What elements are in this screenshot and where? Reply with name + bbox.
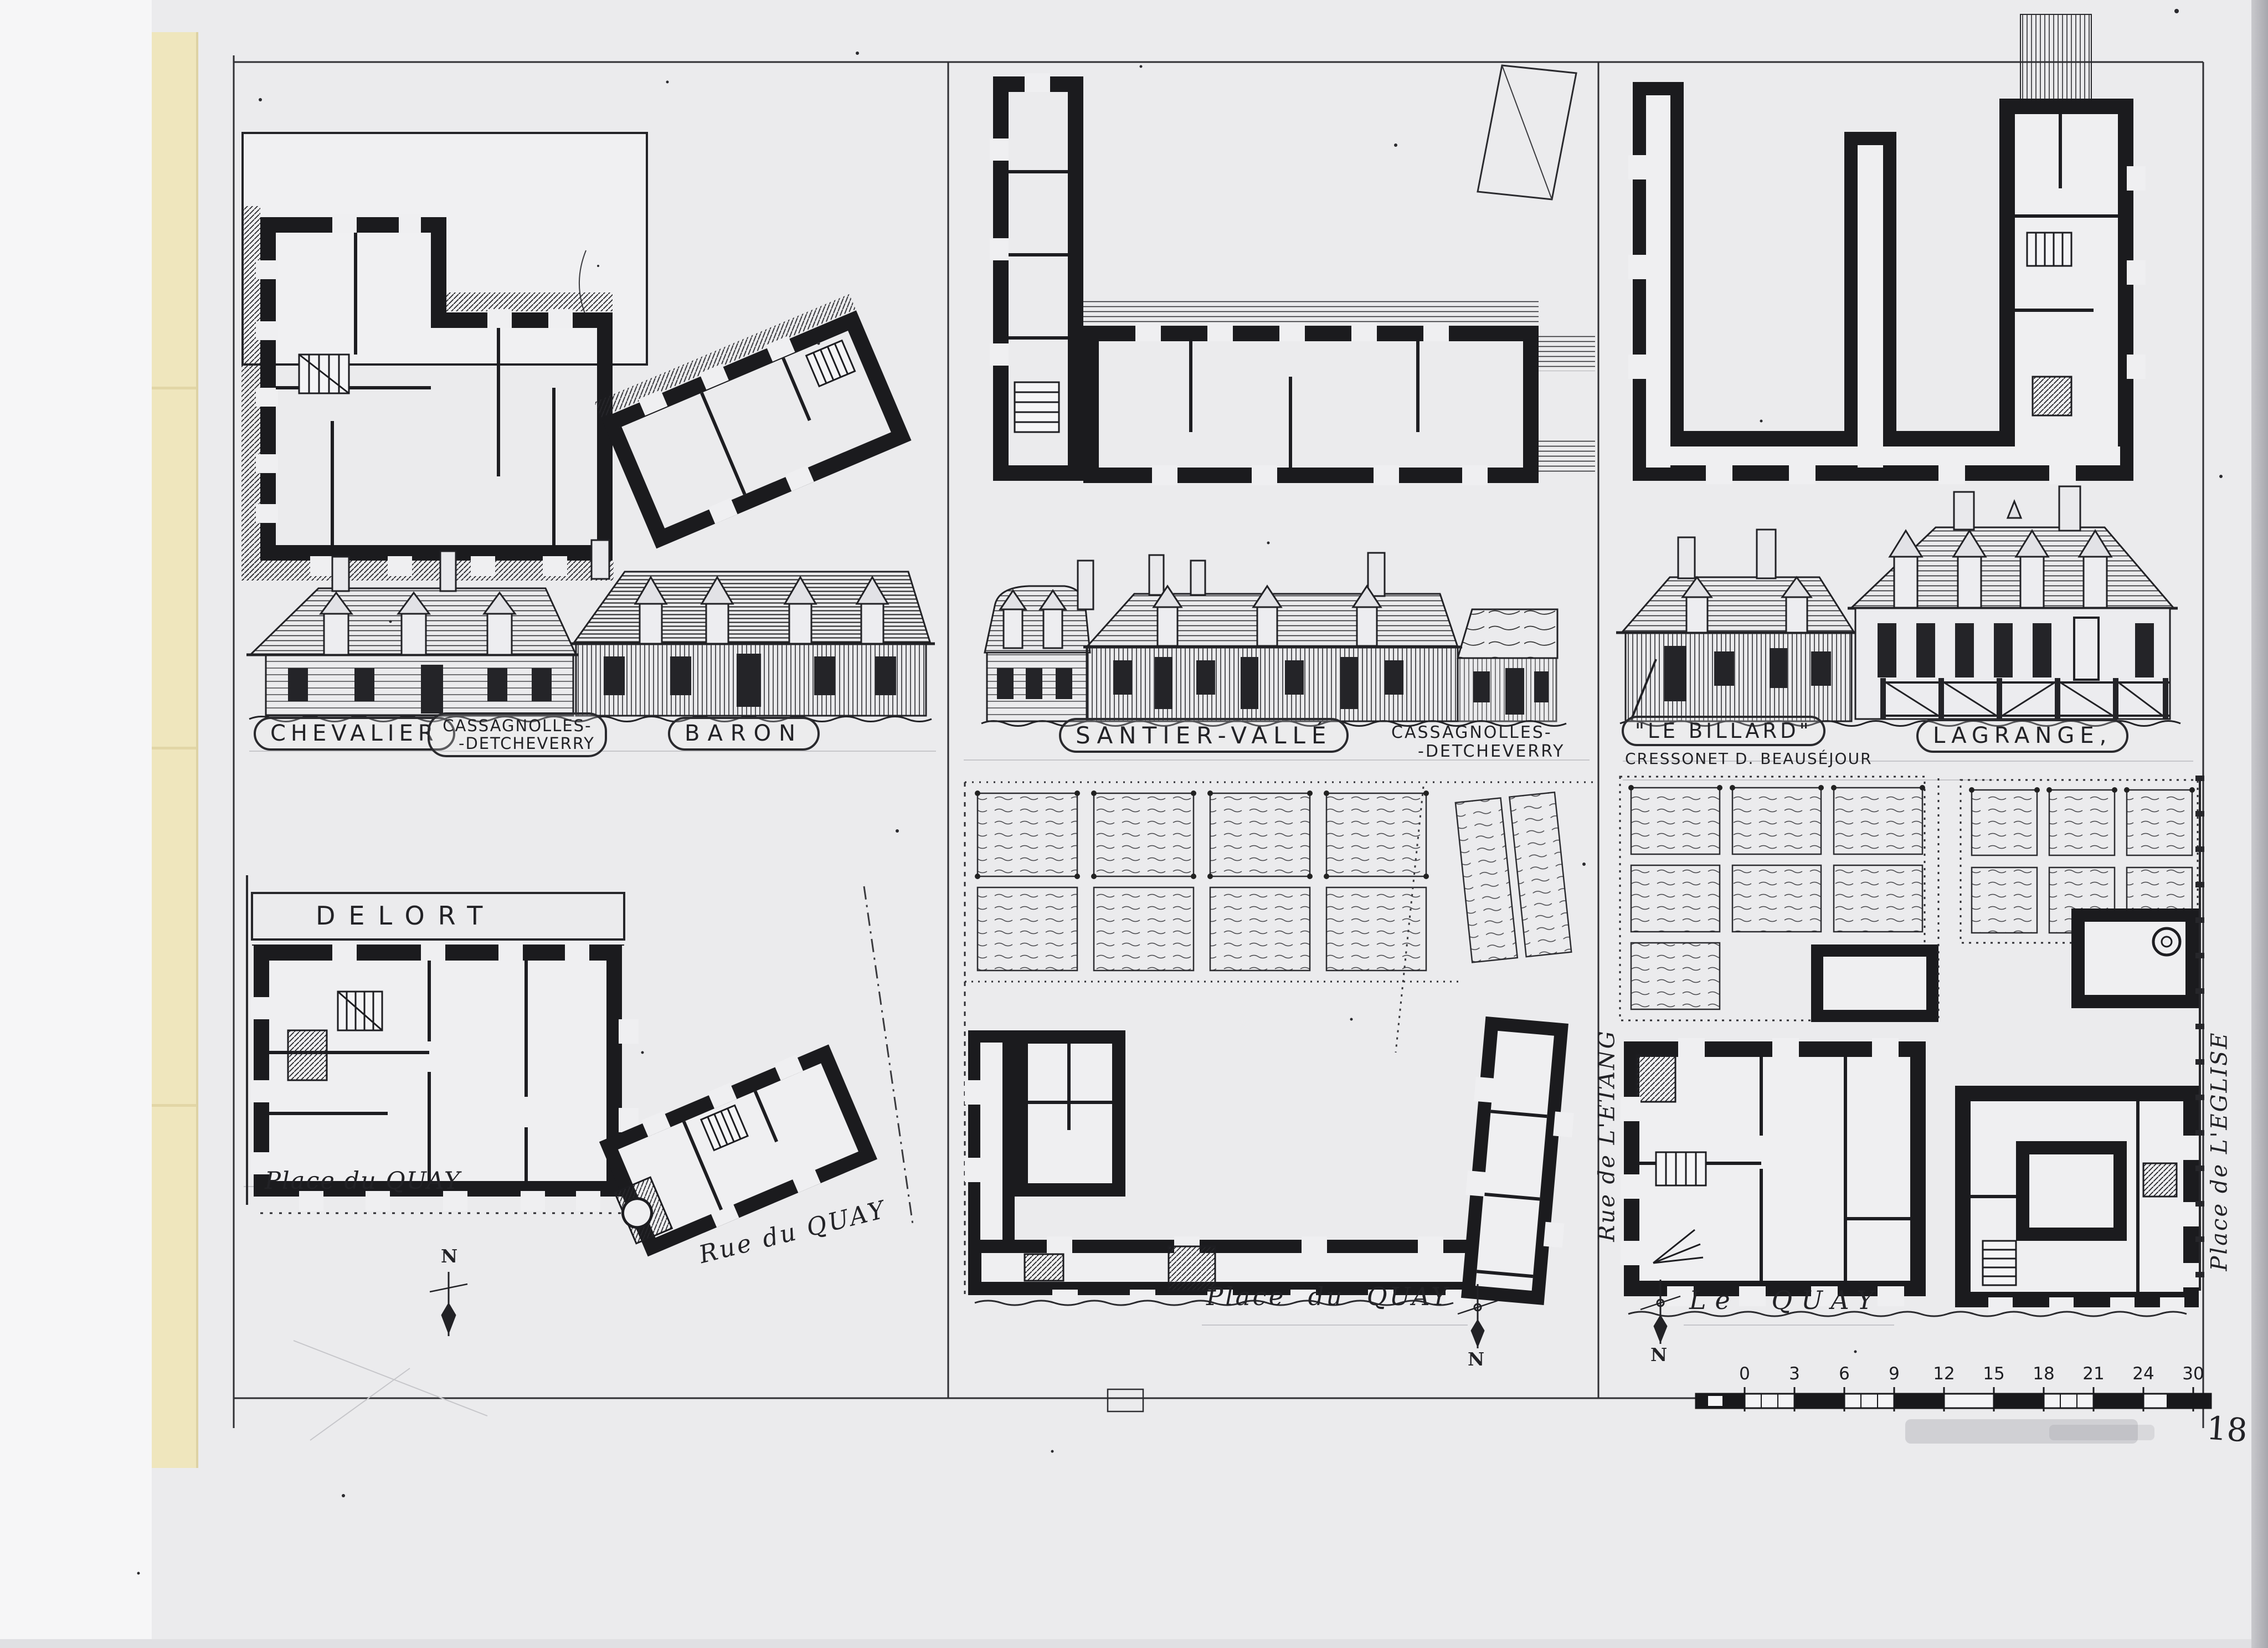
panel3-site-plan	[1620, 776, 2200, 1317]
scale-tick-21: 21	[2081, 1364, 2106, 1384]
label-line1: CASSAGNOLLES-	[1391, 723, 1565, 742]
page-number: 18	[2205, 1410, 2249, 1449]
tilted-wing	[1457, 1016, 1582, 1306]
panel2-top-plans	[990, 65, 1595, 485]
label-delort: DELORT	[316, 902, 496, 931]
tape-seam	[152, 387, 198, 389]
panel1-top-plans	[241, 133, 912, 581]
tape-seam	[152, 1104, 198, 1107]
north-arrow-left	[430, 1272, 467, 1336]
scale-tick-3: 3	[1782, 1364, 1807, 1384]
scale-tick-30: 30	[2181, 1364, 2205, 1384]
label-cassagnolles-detcheverry-left: CASSAGNOLLES- -DETCHEVERRY	[428, 712, 607, 757]
scanned-drawing-sheet: CHEVALIER CASSAGNOLLES- -DETCHEVERRY BAR…	[0, 0, 2268, 1648]
label-rue-de-letang: Rue de L'ETANG	[1595, 1029, 1620, 1241]
panel2-site-plan	[965, 782, 1593, 1411]
scale-tick-18: 18	[2032, 1364, 2056, 1384]
delort-site-plan	[247, 875, 913, 1259]
label-line1: CASSAGNOLLES-	[440, 717, 595, 735]
label-line2: -DETCHEVERRY	[459, 735, 595, 752]
scale-tick-24: 24	[2131, 1364, 2156, 1384]
label-line2: -DETCHEVERRY	[1418, 742, 1565, 761]
label-le-billard: "LE BILLARD"	[1622, 716, 1825, 746]
north-letter-left: N	[441, 1246, 457, 1267]
scale-tick-0: 0	[1732, 1364, 1757, 1384]
label-santier-valle: SANTIER-VALLÉ	[1059, 718, 1349, 753]
north-letter-middle: N	[1468, 1349, 1484, 1370]
panel3-top-plans	[1628, 14, 2146, 484]
label-cassagnolles-detcheverry-mid: CASSAGNOLLES- -DETCHEVERRY	[1391, 723, 1565, 761]
north-letter-right: N	[1650, 1345, 1667, 1365]
label-chevalier: CHEVALIER	[254, 717, 455, 751]
elevation-middle-group	[981, 553, 1566, 726]
label-place-du-quay-left: Place du QUAY	[265, 1168, 461, 1194]
scale-tick-12: 12	[1932, 1364, 1956, 1384]
elevation-right-group	[1616, 486, 2180, 726]
tape-edge	[196, 32, 198, 1468]
elevation-left-group	[246, 540, 935, 722]
masking-tape	[152, 32, 198, 1468]
label-lagrange: LAGRANGE,	[1916, 719, 2128, 753]
scale-bar	[1696, 1387, 2211, 1444]
stair-symbol	[299, 355, 349, 393]
label-baron: BARON	[668, 717, 820, 751]
scan-edge	[2251, 0, 2268, 1648]
scale-tick-9: 9	[1882, 1364, 1906, 1384]
label-place-de-leglise: Place de L'EGLISE	[2208, 1031, 2233, 1271]
drawing-linework	[0, 0, 2268, 1648]
label-place-du-quay-middle: Place du QUAY	[1206, 1283, 1450, 1311]
scale-tick-6: 6	[1832, 1364, 1856, 1384]
label-le-quay: Le QUAY	[1689, 1286, 1883, 1315]
tape-seam	[152, 747, 198, 749]
label-cressonet-beausejour: CRESSONET D. BEAUSÉJOUR	[1625, 750, 1873, 767]
scale-tick-15: 15	[1982, 1364, 2006, 1384]
